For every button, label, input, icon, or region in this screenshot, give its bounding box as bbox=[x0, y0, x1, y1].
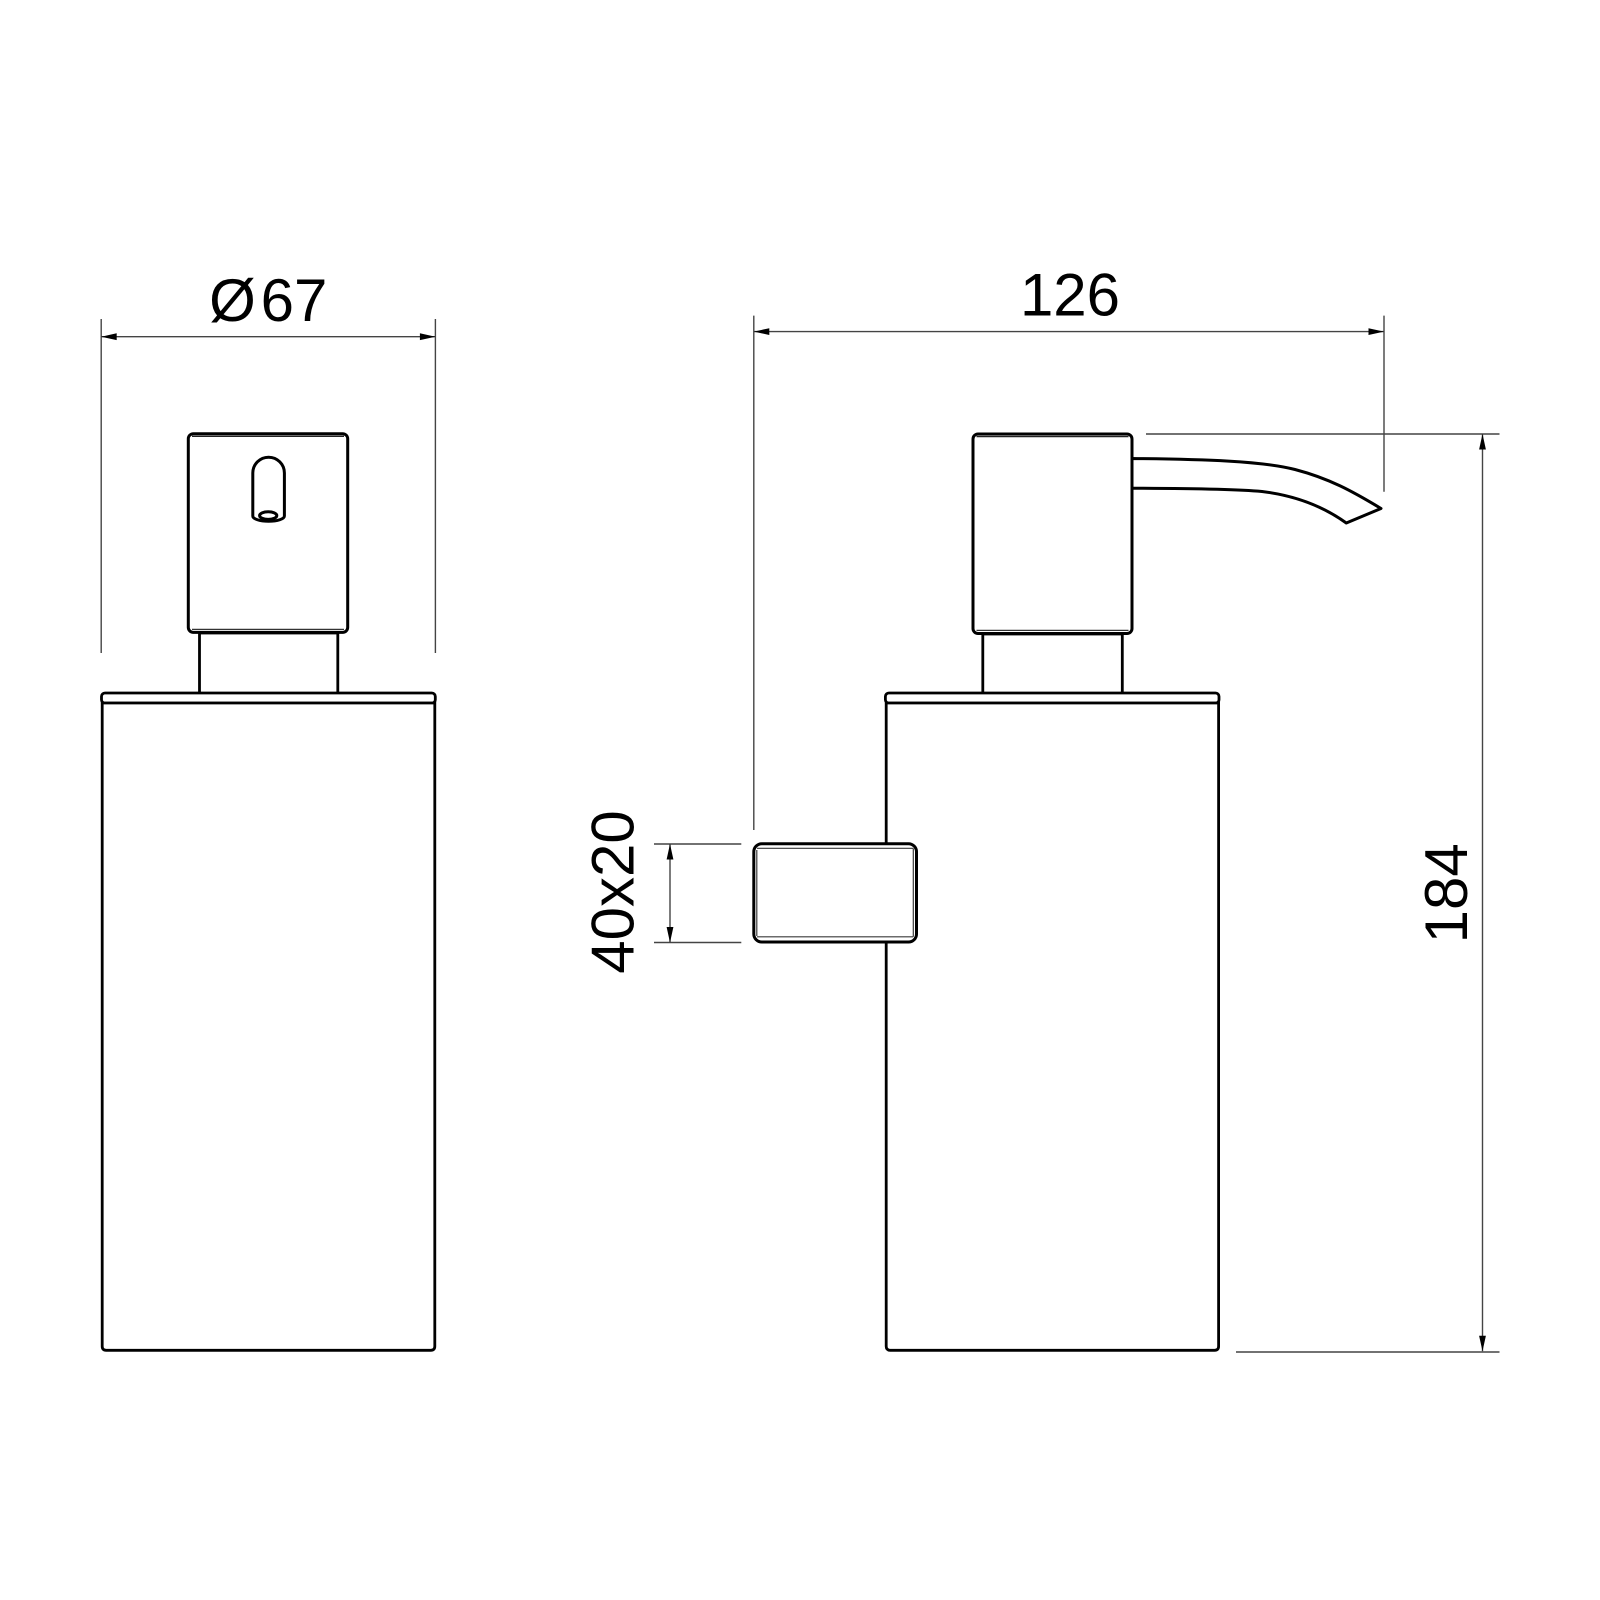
svg-text:Ø: Ø bbox=[209, 267, 256, 334]
svg-text:184: 184 bbox=[1413, 843, 1480, 943]
svg-text:40x20: 40x20 bbox=[580, 810, 647, 973]
svg-text:67: 67 bbox=[261, 267, 328, 334]
svg-text:126: 126 bbox=[1020, 262, 1120, 329]
